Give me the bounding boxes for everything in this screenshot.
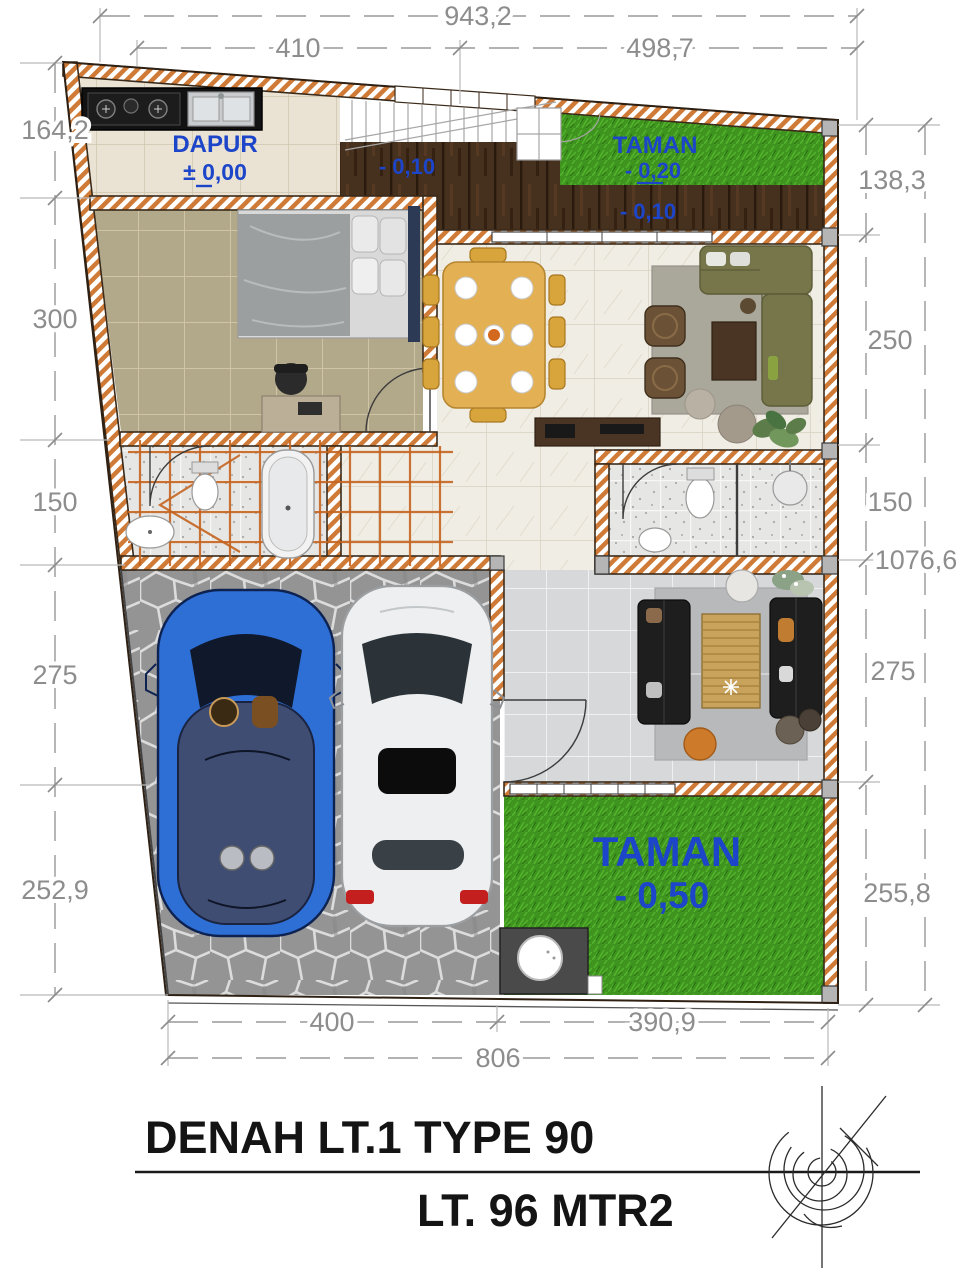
compass-icon bbox=[769, 1086, 886, 1268]
dim-top-overall: 943,2 bbox=[444, 1, 512, 31]
armchair-2 bbox=[645, 358, 685, 398]
tv-console bbox=[535, 418, 660, 446]
garden-bottom-label: TAMAN bbox=[593, 828, 742, 875]
wall-garage-top bbox=[121, 556, 500, 570]
toilet-right bbox=[686, 478, 714, 518]
basin-lower bbox=[639, 528, 671, 552]
pouf-2 bbox=[718, 405, 756, 443]
toilet-left bbox=[192, 474, 218, 510]
dim-bottom-seg-2: 390,9 bbox=[628, 1007, 696, 1037]
dim-right-overall: 1076,6 bbox=[875, 545, 958, 575]
dining-set bbox=[423, 248, 565, 422]
window-patio bbox=[510, 784, 675, 794]
dim-right-2: 250 bbox=[867, 325, 912, 355]
dim-left-3: 150 bbox=[32, 487, 77, 517]
dim-right-1: 138,3 bbox=[858, 165, 926, 195]
dim-right-4: 275 bbox=[870, 656, 915, 686]
understair-floor bbox=[341, 446, 437, 570]
garden-top-label: TAMAN bbox=[613, 132, 698, 159]
dim-top-seg-2: 498,7 bbox=[626, 33, 694, 63]
title-block: DENAH LT.1 TYPE 90 LT. 96 MTR2 bbox=[135, 1086, 920, 1268]
pouf-1 bbox=[685, 389, 715, 419]
hall-floor bbox=[437, 450, 595, 570]
deck-right-level: - 0,10 bbox=[620, 199, 676, 224]
garden-bottom-level: - 0,50 bbox=[615, 875, 710, 916]
dim-right-5: 255,8 bbox=[863, 878, 931, 908]
dim-left-2: 300 bbox=[32, 304, 77, 334]
car-blue bbox=[146, 590, 346, 936]
kitchen-level: ± 0,00 bbox=[183, 159, 247, 185]
coffee-table bbox=[712, 322, 756, 380]
sofa-right bbox=[762, 294, 812, 406]
title-line2: LT. 96 MTR2 bbox=[417, 1185, 674, 1236]
dim-bottom-overall: 806 bbox=[475, 1043, 520, 1073]
deck-left-level: - 0,10 bbox=[379, 154, 435, 179]
kitchen-counter bbox=[82, 88, 262, 130]
patio-stool bbox=[684, 728, 716, 760]
kitchen-label: DAPUR bbox=[172, 131, 257, 158]
dim-left-4: 275 bbox=[32, 660, 77, 690]
wall-bedroom-bottom bbox=[120, 432, 437, 446]
car-white bbox=[330, 586, 504, 926]
floor-plan-drawing: DAPUR ± 0,00 - 0,10 TAMAN - 0,20 - 0,10 … bbox=[0, 0, 961, 1284]
garden-basin bbox=[500, 928, 602, 994]
patio-pouf-2 bbox=[799, 709, 821, 731]
patio-furniture bbox=[638, 570, 822, 760]
dim-top-seg-1: 410 bbox=[275, 33, 320, 63]
dim-bottom-seg-1: 400 bbox=[309, 1007, 354, 1037]
headboard bbox=[408, 206, 420, 342]
wall-bathleft-right bbox=[327, 446, 341, 570]
dim-left-5: 252,9 bbox=[21, 875, 89, 905]
sink-right bbox=[773, 471, 807, 505]
dim-right-3: 150 bbox=[867, 487, 912, 517]
patio-round-table bbox=[726, 570, 758, 602]
wall-bathright-left bbox=[595, 464, 609, 570]
garden-top-level: - 0,20 bbox=[625, 158, 681, 183]
dim-left-1: 164,2 bbox=[21, 115, 89, 145]
bottom-boundary-inner bbox=[168, 1003, 838, 1010]
floor-plan-canvas: DAPUR ± 0,00 - 0,10 TAMAN - 0,20 - 0,10 … bbox=[0, 0, 961, 1284]
wall-bedroom-top bbox=[90, 196, 437, 210]
bed bbox=[238, 206, 420, 342]
title-line1: DENAH LT.1 TYPE 90 bbox=[145, 1112, 594, 1163]
armchair-1 bbox=[645, 306, 685, 346]
